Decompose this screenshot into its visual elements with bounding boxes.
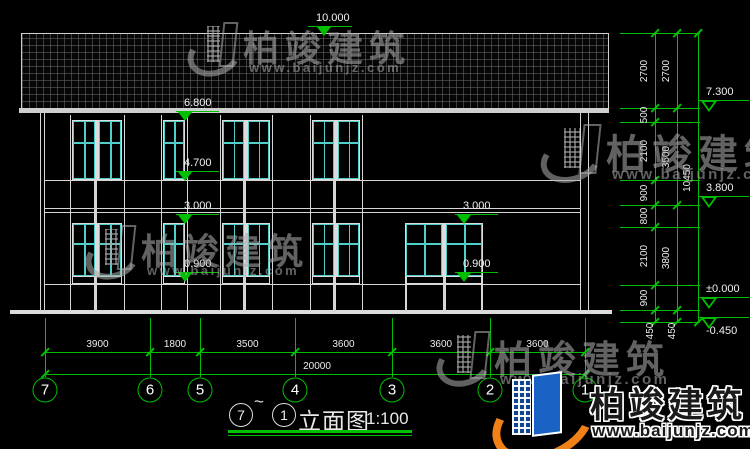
sash-vertical-mullion: [84, 122, 86, 178]
pilaster-line: [70, 115, 71, 312]
axis-bubble: 5: [188, 378, 213, 403]
chain-connector-line: [620, 33, 700, 34]
level-marker-label: 3.000: [184, 201, 212, 212]
level-marker-label: 0.900: [463, 259, 491, 270]
pilaster-line: [310, 115, 311, 312]
title-axis-bubble-right: 1: [272, 403, 296, 427]
window: [72, 120, 122, 180]
window-sash-row: [223, 121, 269, 179]
sash-vertical-mullion: [174, 122, 176, 178]
chain-connector-line: [620, 108, 700, 109]
brand-tower-right: [532, 371, 562, 437]
sash-vertical-mullion: [259, 122, 261, 178]
axis-bubble: 6: [138, 378, 163, 403]
window-sash-row: [73, 121, 121, 179]
dim-label: 3600: [332, 340, 354, 350]
title-tilde: ~: [254, 392, 264, 412]
eave-band: [19, 108, 609, 113]
level-marker-triangle: [178, 172, 192, 181]
window-sash: [73, 121, 95, 179]
window-sash-row: [73, 224, 121, 276]
wall-line: [580, 113, 581, 312]
chain-dim-label: 2700: [662, 59, 672, 81]
dim-label: 3600: [430, 340, 452, 350]
watermark-tower-icon: [564, 128, 580, 168]
window: [405, 223, 483, 284]
dim-label-total: 20000: [303, 362, 331, 372]
sash-vertical-mullion: [84, 225, 86, 275]
level-marker-triangle: [457, 215, 471, 224]
pilaster-line: [124, 115, 125, 312]
level-marker-triangle: [178, 112, 192, 121]
watermark-logo-icon: [540, 124, 602, 184]
level-marker-label: 3.800: [706, 183, 734, 194]
window-sash: [248, 121, 269, 179]
pilaster-line: [161, 115, 162, 312]
window-sash: [338, 121, 359, 179]
level-marker-triangle: [178, 273, 192, 282]
chain-dim-label: 2700: [640, 59, 650, 81]
sash-vertical-mullion: [110, 122, 112, 178]
level-marker-triangle: [457, 273, 471, 282]
brand-tower-left: [512, 379, 531, 435]
level-marker-label: 3.000: [463, 201, 491, 212]
dim-line-segments: [45, 352, 585, 353]
pilaster-line: [272, 115, 273, 312]
dim-label: 3500: [236, 340, 258, 350]
chain-dim-label: 900: [640, 289, 650, 306]
level-marker-triangle-inner: [704, 102, 714, 109]
sash-vertical-mullion: [234, 225, 236, 275]
window: [312, 120, 360, 180]
dim-label: 3600: [526, 340, 548, 350]
level-marker-triangle-inner: [704, 198, 714, 205]
chain-dim-label: 450: [668, 323, 678, 340]
sash-vertical-mullion: [110, 225, 112, 275]
title-underline: [228, 430, 412, 433]
level-marker-label: 4.700: [184, 158, 212, 169]
window-sash: [99, 224, 121, 276]
axis-extension-line: [585, 318, 586, 377]
window: [72, 223, 122, 284]
title-scale: 1:100: [366, 409, 409, 429]
level-marker-triangle: [317, 27, 331, 36]
watermark-swoosh-icon: [535, 130, 607, 191]
window-sash: [313, 224, 334, 276]
window-sash-row: [164, 224, 184, 276]
watermark-tower-icon-2: [578, 124, 601, 174]
window-sash: [223, 224, 244, 276]
chain-connector-line: [620, 227, 700, 228]
chain-dim-label: 3800: [662, 246, 672, 268]
window-sash: [248, 224, 269, 276]
watermark-text: 柏竣建筑: [606, 122, 750, 180]
axis-extension-line: [490, 318, 491, 377]
sash-vertical-mullion: [234, 122, 236, 178]
chain-dim-label: 2100: [640, 140, 650, 162]
chain-connector-line: [620, 205, 700, 206]
axis-extension-line: [295, 318, 296, 377]
chain-dim-label: 500: [640, 107, 650, 124]
axis-extension-line: [45, 318, 46, 377]
window-sash: [99, 121, 121, 179]
level-marker-label: 0.900: [184, 259, 212, 270]
level-marker-label: 7.300: [706, 87, 734, 98]
pilaster-line: [220, 115, 221, 312]
axis-bubble: 7: [33, 378, 58, 403]
chain-dim-label: 800: [640, 208, 650, 225]
title-underline-2: [228, 435, 412, 436]
level-marker-triangle-inner: [704, 299, 714, 306]
dim-label: 1800: [164, 340, 186, 350]
wall-line: [40, 113, 41, 312]
axis-bubble: 4: [283, 378, 308, 403]
pilaster-line: [362, 115, 363, 312]
sash-vertical-mullion: [349, 225, 351, 275]
chain-dim-label: 2100: [640, 245, 650, 267]
window-sash: [338, 224, 359, 276]
level-marker-label: ±0.000: [706, 284, 740, 295]
sash-vertical-mullion: [174, 225, 176, 275]
brand-logo: 柏竣建筑 www.baijunjz.com: [488, 371, 750, 449]
chain-dim-label: 3500: [662, 145, 672, 167]
chain-connector-line: [620, 322, 700, 323]
chain-dim-label: 10450: [683, 164, 693, 192]
window-sash-row: [313, 121, 359, 179]
sash-vertical-mullion: [259, 225, 261, 275]
sash-vertical-mullion: [349, 122, 351, 178]
level-marker-label: 6.800: [184, 98, 212, 109]
chain-connector-line: [620, 285, 700, 286]
window-sash: [164, 224, 184, 276]
window-sash: [406, 224, 442, 276]
window-sash: [313, 121, 334, 179]
chain-line: [677, 33, 678, 322]
axis-extension-line: [200, 318, 201, 377]
wall-line: [588, 113, 589, 312]
sash-vertical-mullion: [324, 225, 326, 275]
chain-dim-label: 450: [646, 323, 656, 340]
axis-extension-line: [150, 318, 151, 377]
level-marker-label: -0.450: [706, 326, 737, 337]
cad-elevation-drawing: 10.0006.8004.7003.0000.9003.0000.9007.30…: [0, 0, 750, 449]
window: [222, 223, 270, 284]
watermark-tower-icon: [457, 335, 471, 373]
axis-bubble: 3: [380, 378, 405, 403]
chain-dim-label: 900: [640, 184, 650, 201]
title-axis-bubble-left: 7: [229, 403, 253, 427]
chain-connector-line: [620, 310, 700, 311]
level-marker-label: 10.000: [316, 13, 350, 24]
level-marker-triangle: [178, 215, 192, 224]
ground-line: [10, 310, 612, 314]
sash-vertical-mullion: [324, 122, 326, 178]
window-sill-panel: [223, 276, 269, 283]
window: [312, 223, 360, 284]
window-sash-row: [223, 224, 269, 276]
roof-tile-hatch: [21, 33, 609, 110]
dim-label: 3900: [86, 340, 108, 350]
window-sash: [73, 224, 95, 276]
window-sill-panel: [313, 276, 359, 283]
sash-vertical-mullion: [424, 225, 426, 275]
window-sill-panel: [73, 276, 121, 283]
window-sash: [223, 121, 244, 179]
window-sash-row: [313, 224, 359, 276]
window: [222, 120, 270, 180]
chain-line: [698, 33, 699, 322]
axis-extension-line: [392, 318, 393, 377]
chain-connector-line: [620, 122, 700, 123]
brand-url: www.baijunjz.com: [592, 421, 750, 441]
